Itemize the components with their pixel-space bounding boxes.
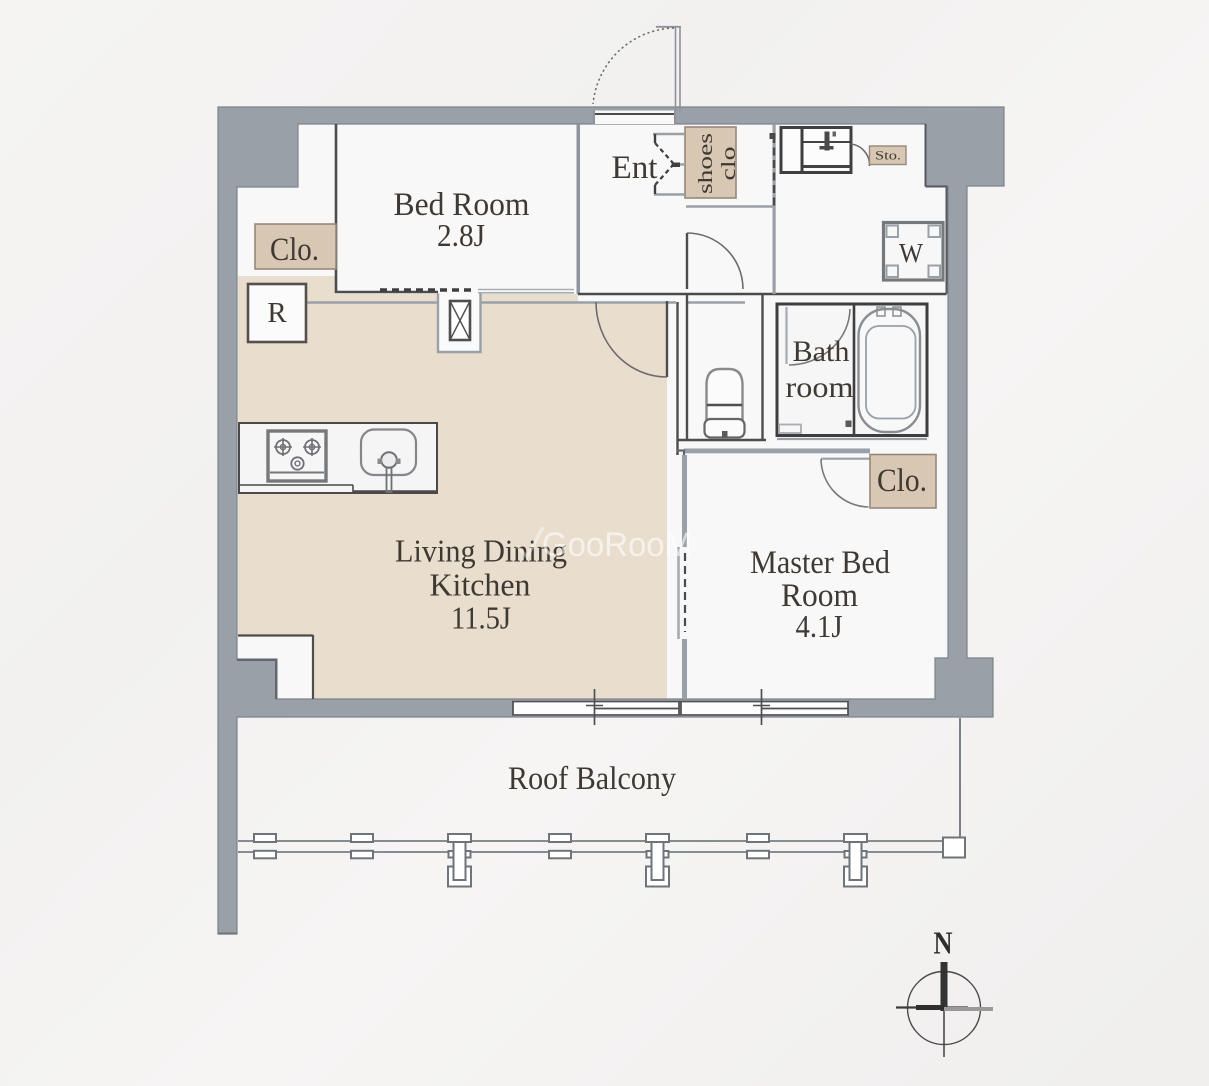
svg-text:4.1J: 4.1J — [796, 608, 843, 644]
svg-text:W: W — [899, 238, 923, 268]
svg-text:Ent: Ent — [612, 150, 658, 186]
svg-text:Bath: Bath — [793, 335, 850, 368]
svg-text:N: N — [934, 925, 953, 961]
svg-text:clo: clo — [718, 147, 740, 181]
svg-text:2.8J: 2.8J — [437, 217, 485, 253]
svg-text:Master Bed: Master Bed — [750, 545, 890, 581]
svg-text:room: room — [786, 371, 854, 404]
svg-text:R: R — [267, 297, 287, 329]
svg-text:Clo.: Clo. — [877, 463, 927, 499]
svg-text:Roof Balcony: Roof Balcony — [508, 761, 676, 797]
svg-text:11.5J: 11.5J — [451, 601, 511, 636]
svg-text:Clo.: Clo. — [270, 232, 319, 268]
svg-text:Sto.: Sto. — [875, 148, 901, 163]
svg-text:shoes: shoes — [695, 133, 717, 194]
svg-text:Kitchen: Kitchen — [430, 568, 531, 603]
svg-text:GooRooM: GooRooM — [542, 526, 692, 564]
